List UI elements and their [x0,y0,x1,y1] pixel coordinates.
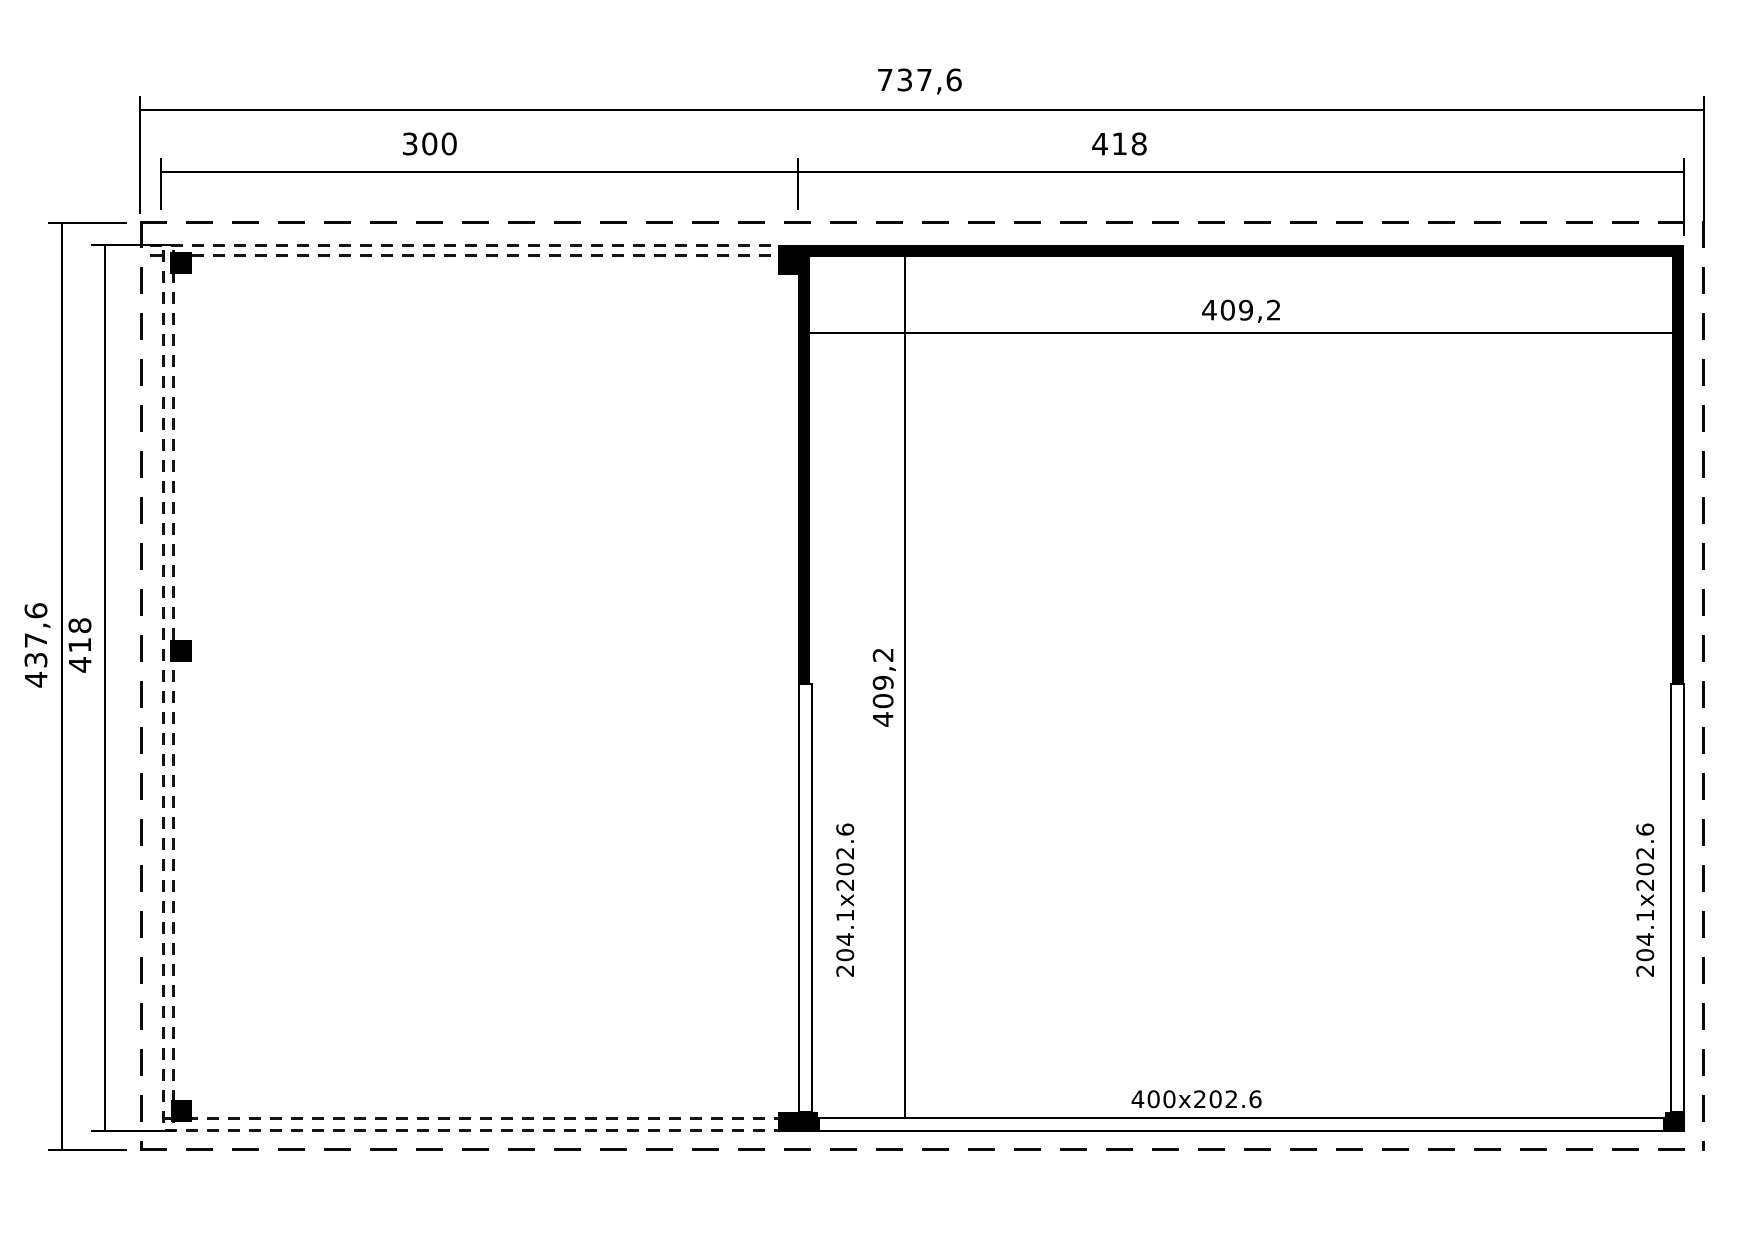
roof-outline-right [1702,221,1705,1151]
room-inner-depth-line [904,257,906,1117]
right-door-opening [1670,683,1685,1113]
room-inner-width-label: 409,2 [1201,297,1284,325]
building-depth-label: 418 [67,616,97,675]
dim-tick [91,1130,175,1132]
right-door-label: 204.1x202.6 [1634,821,1658,978]
rear-opening [818,1117,1665,1132]
carport-post-top-left [170,252,192,274]
room-inner-depth-label: 409,2 [870,646,898,729]
dim-tick [139,96,141,214]
dim-tick [1703,96,1705,226]
left-door-opening [798,683,813,1113]
carport-edge-bottom-inner [165,1117,778,1120]
carport-post-bottom-left [171,1100,192,1122]
roof-outline-left [140,221,143,1151]
roof-outline-bottom [140,1148,1705,1151]
room-wall-right-upper [1672,245,1684,683]
room-wall-left-upper [798,245,810,683]
floor-plan-drawing: 737,6 300 418 437,6 418 409,2 409,2 204.… [0,0,1754,1240]
room-corner-bottom-left [778,1112,818,1132]
room-inner-width-line [810,332,1672,334]
dim-line-overall-width [140,109,1705,111]
dim-tick [160,158,162,210]
room-wall-top [798,245,1684,257]
rear-opening-label: 400x202.6 [1130,1088,1263,1112]
dim-tick [797,158,799,210]
dim-tick [48,1149,127,1151]
dim-tick [91,244,175,246]
dim-tick [48,222,127,224]
dim-line-building-depth [104,245,106,1132]
overall-depth-label: 437,6 [23,601,53,689]
room-corner-bottom-right [1665,1112,1685,1132]
carport-edge-left-inner [172,250,175,1126]
carport-edge-bottom-outer [165,1129,778,1132]
overall-width-label: 737,6 [876,67,964,97]
dim-line-overall-depth [61,223,63,1150]
carport-width-label: 300 [401,131,460,161]
dim-tick [1683,158,1685,236]
left-door-label: 204.1x202.6 [834,821,858,978]
roof-outline-top [140,221,1705,224]
room-width-label: 418 [1091,131,1150,161]
carport-edge-top-inner [150,254,778,257]
carport-post-mid-left [170,640,192,662]
carport-edge-top-outer [150,244,778,247]
room-corner-top-left [778,245,810,275]
carport-edge-left-outer [162,250,165,1126]
dim-line-sections [161,171,1684,173]
